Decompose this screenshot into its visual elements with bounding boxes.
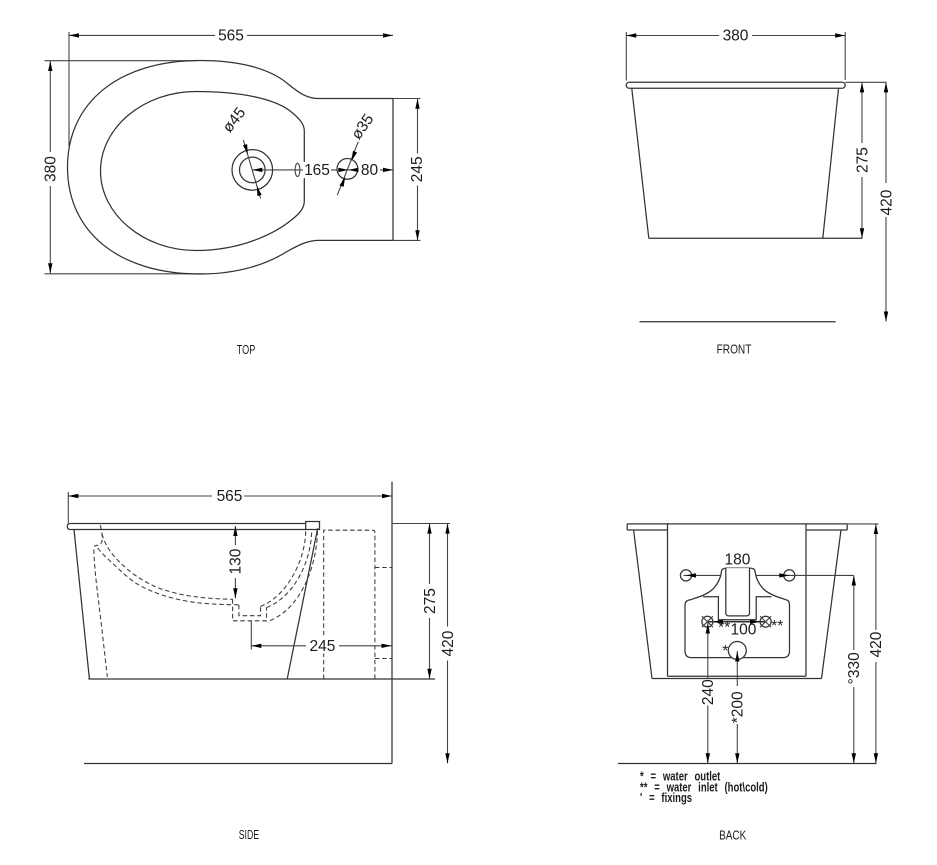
- svg-text:565: 565: [217, 488, 243, 505]
- svg-text:BACK: BACK: [719, 829, 747, 842]
- svg-text:' = fixings: ' = fixings: [640, 792, 692, 806]
- svg-text:240: 240: [700, 679, 717, 705]
- svg-text:130: 130: [228, 548, 245, 574]
- svg-text:420: 420: [440, 630, 457, 656]
- svg-text:**: **: [771, 618, 783, 635]
- svg-text:FRONT: FRONT: [717, 344, 752, 357]
- svg-text:245: 245: [309, 638, 335, 655]
- svg-text:°330: °330: [846, 652, 863, 684]
- svg-text:100: 100: [730, 622, 756, 639]
- svg-text:245: 245: [409, 156, 426, 182]
- svg-text:165: 165: [304, 162, 330, 179]
- svg-text:420: 420: [878, 189, 895, 215]
- svg-text:TOP: TOP: [237, 344, 256, 358]
- svg-text:565: 565: [218, 28, 244, 45]
- svg-text:180: 180: [724, 552, 750, 569]
- svg-text:420: 420: [868, 631, 885, 657]
- svg-text:80: 80: [361, 162, 379, 179]
- svg-text:380: 380: [43, 156, 60, 182]
- svg-text:*: *: [722, 643, 728, 660]
- svg-text:**: **: [718, 620, 730, 637]
- svg-text:275: 275: [422, 588, 439, 614]
- svg-text:SIDE: SIDE: [239, 828, 259, 842]
- svg-text:*200: *200: [730, 691, 747, 723]
- svg-text:275: 275: [854, 147, 871, 173]
- svg-text:380: 380: [723, 28, 749, 45]
